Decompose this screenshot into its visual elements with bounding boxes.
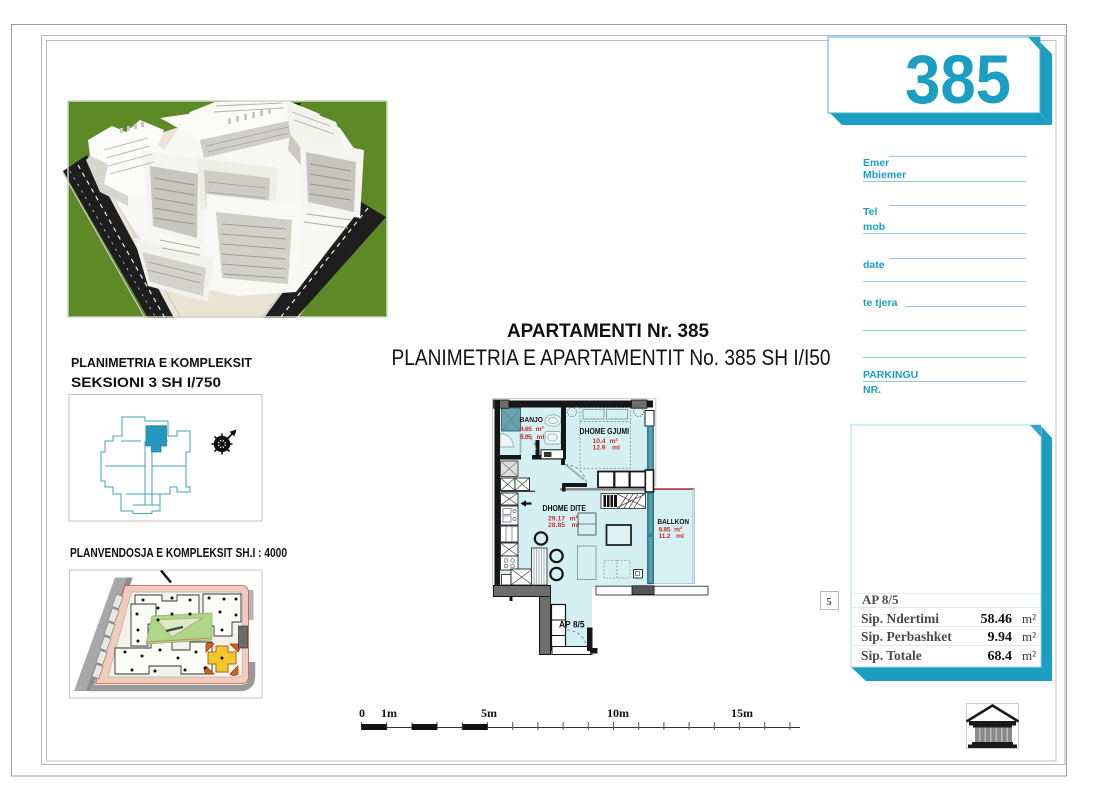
svg-text:NR.: NR. <box>863 384 881 396</box>
svg-text:PLANIMETRIA E APARTAMENTIT No.: PLANIMETRIA E APARTAMENTIT No. 385 SH I/… <box>392 345 831 370</box>
svg-text:APARTAMENTI Nr. 385: APARTAMENTI Nr. 385 <box>507 321 709 342</box>
svg-text:Sip. Perbashket: Sip. Perbashket <box>861 629 952 644</box>
svg-text:5m: 5m <box>481 706 497 720</box>
svg-text:AP 8/5: AP 8/5 <box>559 620 585 630</box>
svg-text:68.4: 68.4 <box>988 649 1013 664</box>
svg-text:4.65: 4.65 <box>520 426 532 433</box>
svg-text:1m: 1m <box>381 706 397 720</box>
svg-text:m²: m² <box>1022 629 1036 644</box>
svg-text:Sip. Ndertimi: Sip. Ndertimi <box>861 611 939 626</box>
svg-text:Emer: Emer <box>863 157 889 169</box>
svg-text:385: 385 <box>905 41 1011 118</box>
svg-text:SEKSIONI 3 SH I/750: SEKSIONI 3 SH I/750 <box>71 374 221 390</box>
svg-text:m²: m² <box>536 426 545 433</box>
svg-text:m²: m² <box>1022 648 1036 663</box>
svg-text:6.05: 6.05 <box>520 434 532 441</box>
svg-text:28.85: 28.85 <box>548 522 565 529</box>
svg-text:5: 5 <box>826 596 832 608</box>
svg-text:Mbiemer: Mbiemer <box>863 169 906 181</box>
svg-text:PLANVENDOSJA E KOMPLEKSIT SH.I: PLANVENDOSJA E KOMPLEKSIT SH.I : 4000 <box>70 546 287 560</box>
svg-text:DHOME GJUMI: DHOME GJUMI <box>580 427 630 436</box>
svg-text:ml: ml <box>537 434 545 441</box>
svg-text:BALLKON: BALLKON <box>658 517 690 526</box>
svg-text:10m: 10m <box>607 706 629 720</box>
svg-text:ml: ml <box>612 444 620 451</box>
svg-text:Sip. Totale: Sip. Totale <box>861 648 922 663</box>
svg-text:0: 0 <box>359 706 365 720</box>
svg-text:date: date <box>863 259 885 271</box>
svg-text:11.2: 11.2 <box>659 533 671 540</box>
svg-text:mob: mob <box>863 221 885 233</box>
svg-text:PARKINGU: PARKINGU <box>863 369 918 381</box>
svg-text:ml: ml <box>572 522 580 529</box>
svg-text:12.9: 12.9 <box>593 444 606 451</box>
svg-text:15m: 15m <box>731 706 753 720</box>
svg-text:9.94: 9.94 <box>988 630 1013 645</box>
svg-text:te tjera: te tjera <box>863 297 898 309</box>
svg-text:PLANIMETRIA E KOMPLEKSIT: PLANIMETRIA E KOMPLEKSIT <box>71 356 252 370</box>
svg-text:Tel: Tel <box>863 206 877 218</box>
svg-text:AP 8/5: AP 8/5 <box>862 592 899 607</box>
svg-text:BANJO: BANJO <box>520 417 544 424</box>
svg-text:DHOME DITE: DHOME DITE <box>543 504 587 513</box>
svg-text:m²: m² <box>1022 611 1036 626</box>
svg-text:ml: ml <box>676 533 684 540</box>
svg-text:58.46: 58.46 <box>981 612 1013 627</box>
